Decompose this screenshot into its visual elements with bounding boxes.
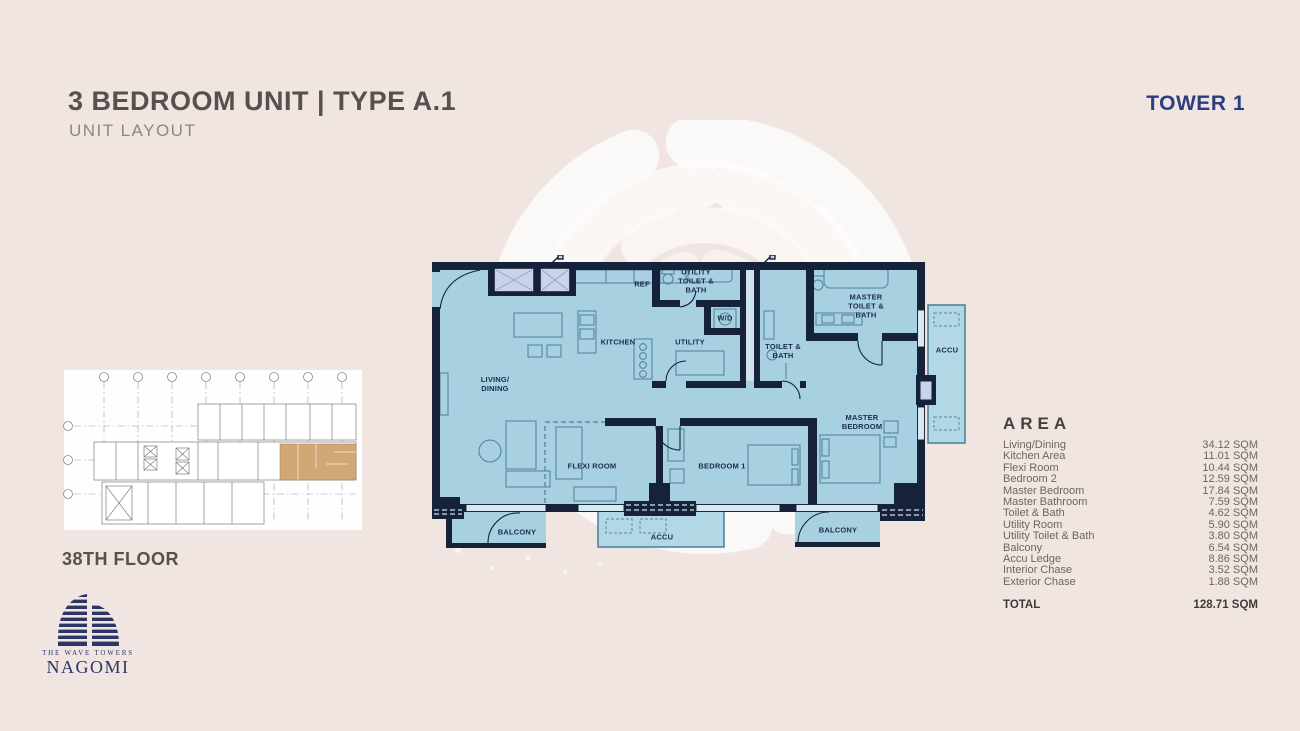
area-row-value: 3.80 SQM [1208,531,1258,542]
logo-tagline: THE WAVE TOWERS [36,649,140,657]
area-table: AREA Living/Dining34.12 SQMKitchen Area1… [1003,414,1258,611]
room-label-toilet-bath: TOILET & BATH [765,343,801,361]
room-label-ref: REF [634,281,650,290]
room-label-utility: UTILITY [675,339,705,348]
room-label-utility-toilet-bath: UTILITY TOILET & BATH [678,269,714,296]
room-label-accu-right: ACCU [936,347,958,356]
tower-label: TOWER 1 [1146,92,1245,116]
area-total-value: 128.71 SQM [1193,599,1258,611]
room-label-living-dining: LIVING/ DINING [481,376,510,394]
room-label-master-toilet-bath: MASTER TOILET & BATH [848,294,884,321]
page-title: 3 BEDROOM UNIT | TYPE A.1 [68,86,456,117]
room-label-kitchen: KITCHEN [601,339,636,348]
key-plan-drawing [58,368,368,536]
area-rows: Living/Dining34.12 SQMKitchen Area11.01 … [1003,440,1258,588]
page-subtitle: UNIT LAYOUT [69,121,196,141]
area-row-value: 1.88 SQM [1208,577,1258,588]
area-row-label: Bedroom 2 [1003,474,1057,485]
area-row-label: Utility Toilet & Bath [1003,531,1095,542]
floor-label: 38TH FLOOR [62,549,179,570]
room-label-master-bedroom: MASTER BEDROOM [842,414,883,432]
floor-plan: LIVING/ DINING KITCHEN REF UTILITY TOILE… [428,255,968,555]
room-label-accu-bottom: ACCU [651,534,673,543]
area-table-title: AREA [1003,414,1258,434]
logo-brand: NAGOMI [36,657,140,678]
room-label-bedroom-1: BEDROOM 1 [698,463,745,472]
area-total-row: TOTAL 128.71 SQM [1003,599,1258,611]
area-row-label: Exterior Chase [1003,577,1076,588]
room-label-wd: W/D [717,315,732,324]
floor-plan-drawing [428,255,968,555]
area-row: Bedroom 212.59 SQM [1003,474,1258,485]
slide: { "header": { "title": "3 BEDROOM UNIT |… [0,0,1300,731]
area-row-value: 12.59 SQM [1202,474,1258,485]
area-row: Exterior Chase1.88 SQM [1003,577,1258,588]
room-label-balcony-left: BALCONY [498,529,536,538]
room-label-balcony-right: BALCONY [819,527,857,536]
area-row: Utility Toilet & Bath3.80 SQM [1003,531,1258,542]
room-label-flexi-room: FLEXI ROOM [568,463,617,472]
area-total-label: TOTAL [1003,599,1040,611]
nagomi-logo-icon [56,590,122,648]
